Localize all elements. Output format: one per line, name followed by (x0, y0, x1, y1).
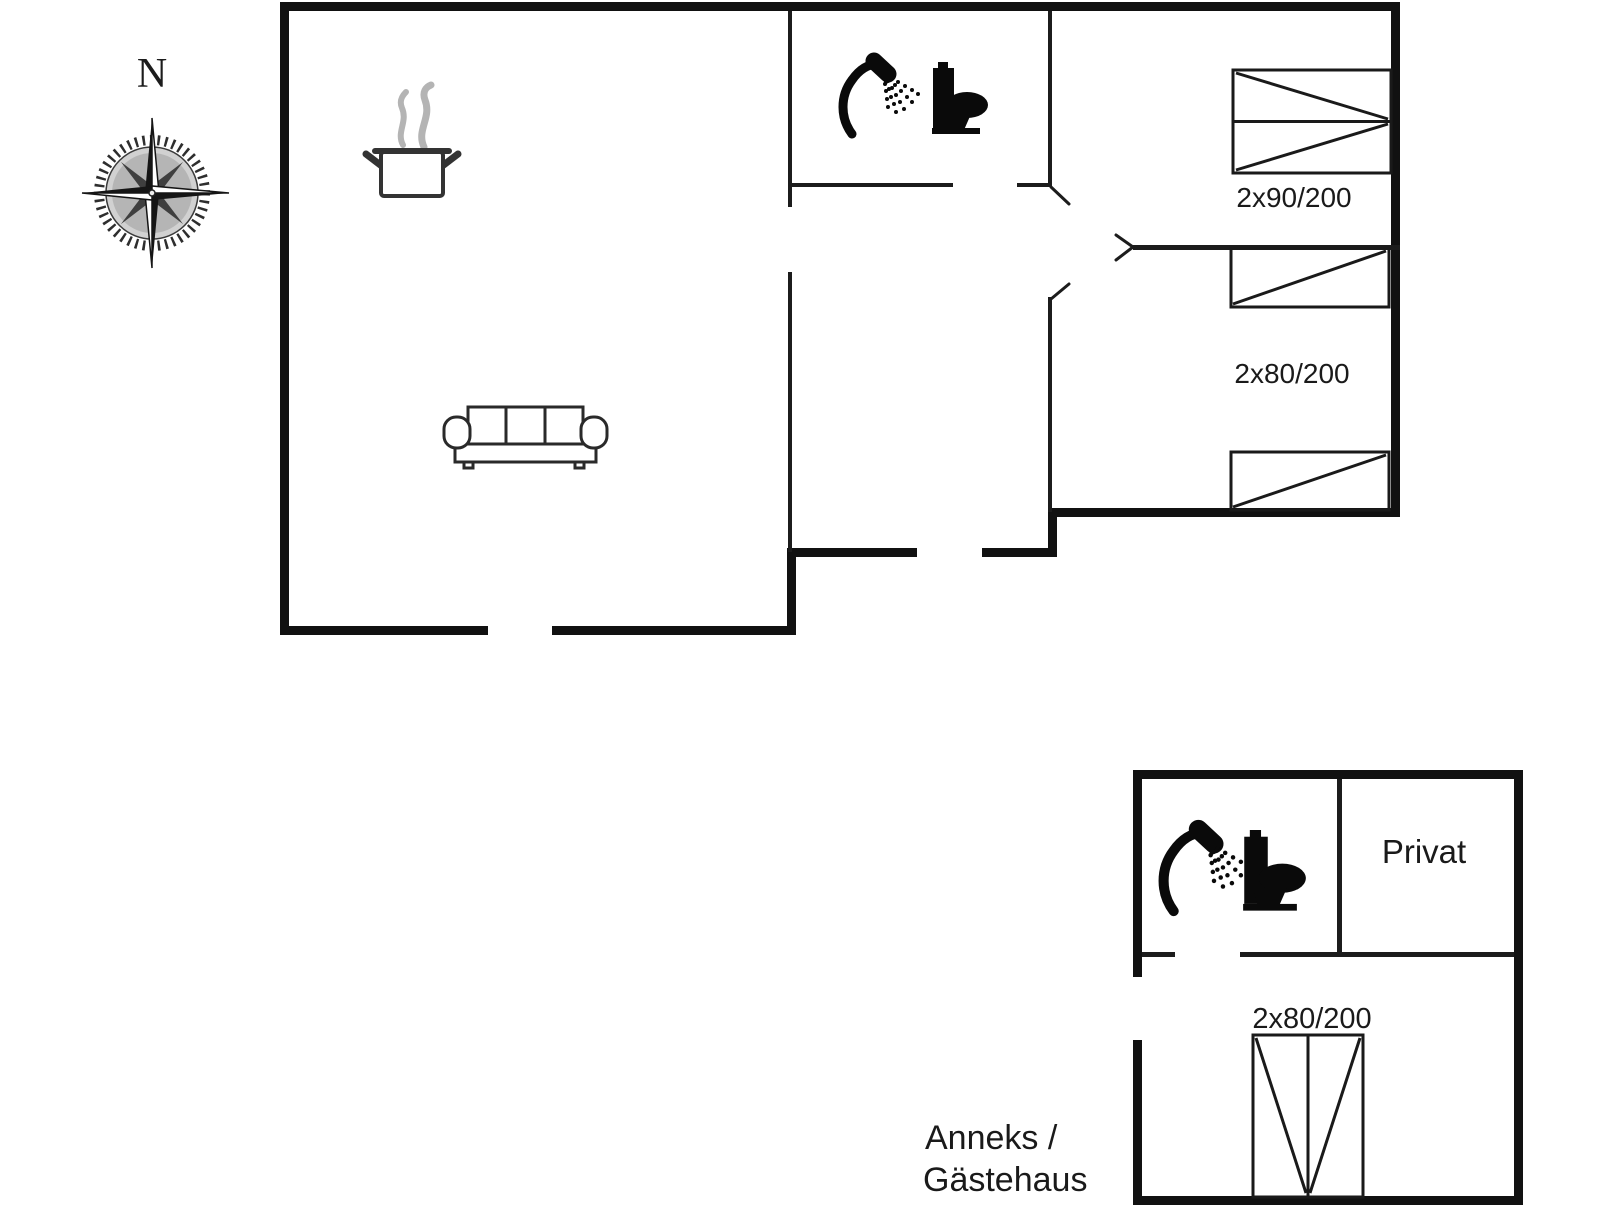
bed-diagonal (1233, 251, 1386, 304)
door-swing-marks (1051, 187, 1133, 299)
wall-segment (1133, 1040, 1142, 1205)
wall-segment (787, 548, 917, 557)
privat-room-label: Privat (1382, 833, 1466, 870)
wall-segment (1514, 770, 1523, 1205)
wall-segment (280, 626, 488, 635)
sofa-armrest (444, 417, 470, 448)
bed-diagonal (1236, 73, 1388, 119)
bed-diagonal (1236, 124, 1388, 170)
cooking-pot-icon (366, 85, 458, 196)
annex-bed-label: 2x80/200 (1252, 1003, 1371, 1035)
wall-segment (280, 2, 1400, 11)
sofa-back (468, 407, 583, 444)
bed-diagonal (1256, 1038, 1306, 1193)
bed-diagonal (1233, 455, 1386, 507)
wall-segment (790, 183, 953, 187)
toilet-icon (1243, 830, 1306, 911)
main-house-interior-walls (788, 11, 1400, 552)
annex-title-line1: Anneks / (925, 1119, 1058, 1157)
wall-segment (788, 11, 792, 207)
wall-segment (1337, 779, 1342, 957)
wall-segment (787, 548, 796, 635)
wall-segment (1142, 952, 1175, 957)
toilet-icon (932, 62, 988, 134)
compass-north-label: N (137, 51, 167, 97)
wall-segment (1048, 11, 1052, 187)
door-opening-arrow (1116, 247, 1133, 260)
pot-body (381, 152, 443, 196)
compass-center-dot (149, 190, 155, 196)
shower-icon (1164, 829, 1250, 911)
compass-rose-icon (82, 118, 229, 268)
wall-segment (1048, 297, 1052, 512)
bed-label-90-200: 2x90/200 (1236, 182, 1351, 213)
wall-segment (280, 2, 289, 635)
sofa-icon (444, 407, 607, 468)
wall-segment (1133, 770, 1523, 779)
door-opening-arrow (1116, 235, 1133, 247)
bed-label-80-200: 2x80/200 (1234, 358, 1349, 389)
steam-wisp (401, 92, 406, 145)
wall-segment (982, 548, 1057, 557)
door-swing-tick (1051, 187, 1069, 204)
shower-icon (843, 61, 920, 134)
wall-segment (1017, 183, 1052, 187)
single-bed-80-lower (1231, 452, 1389, 510)
wall-segment (788, 272, 792, 552)
steam-wisp (422, 85, 431, 147)
bed-diagonal (1310, 1038, 1360, 1193)
annex-title-line2: Gästehaus (923, 1161, 1087, 1199)
annex-double-bed (1253, 1035, 1363, 1197)
wall-segment (1133, 770, 1142, 977)
door-swing-tick (1051, 284, 1069, 299)
sofa-armrest (581, 417, 607, 448)
sofa-base (455, 444, 596, 462)
wall-segment (1240, 952, 1514, 957)
single-bed-80-upper (1231, 248, 1389, 307)
wall-segment (552, 626, 796, 635)
double-bed-90 (1233, 70, 1391, 173)
floorplan-drawing: N (0, 0, 1606, 1205)
floorplan-canvas: N (0, 0, 1606, 1205)
